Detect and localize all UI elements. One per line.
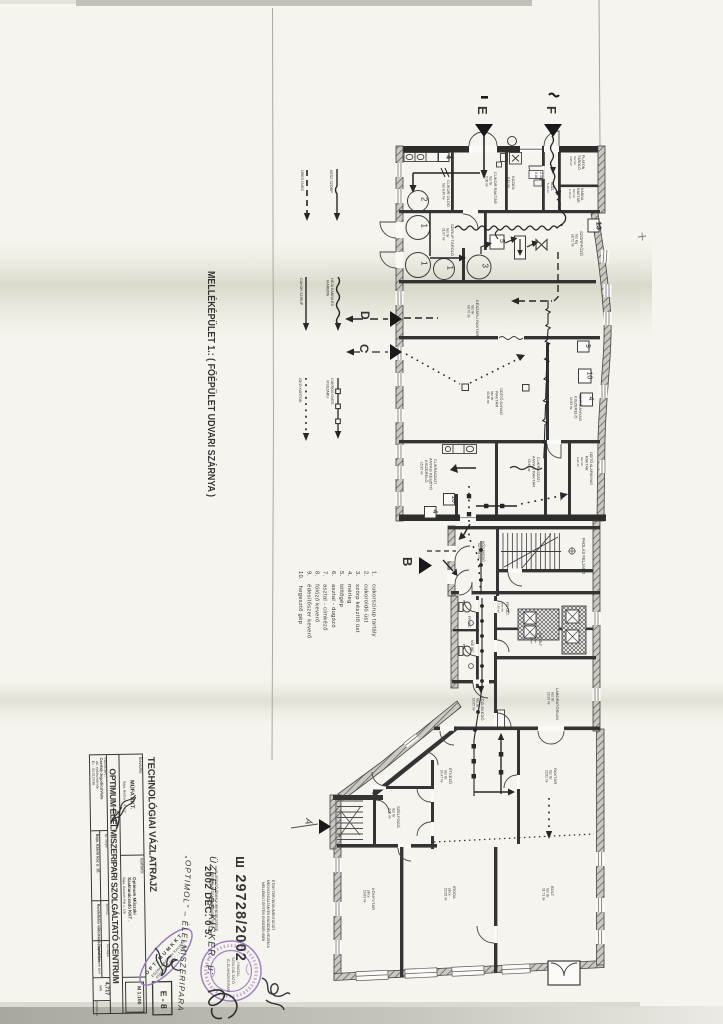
- svg-text:43.36 m²: 43.36 m²: [486, 391, 490, 404]
- svg-text:ISKÓ KARTON: ISKÓ KARTON: [298, 378, 303, 403]
- svg-text:RAKTÁR: RAKTÁR: [585, 456, 589, 471]
- svg-text:E: E: [475, 106, 490, 115]
- svg-text:tervezte:: tervezte:: [138, 757, 143, 774]
- svg-text:KAZÁN: KAZÁN: [511, 176, 516, 189]
- svg-text:10: 10: [586, 372, 593, 380]
- svg-text:SZIRUP TÁROLÓ: SZIRUP TÁROLÓ: [450, 224, 455, 256]
- svg-text:CUKOR OLDÓ: CUKOR OLDÓ: [446, 180, 451, 207]
- svg-text:ÜDÍTŐ ALAPANYAG: ÜDÍTŐ ALAPANYAG: [589, 452, 594, 485]
- svg-text:építész:: építész:: [105, 904, 109, 916]
- svg-text:3.95 m²: 3.95 m²: [569, 156, 573, 166]
- svg-text:1. cukorszirup tartály: 1. cukorszirup tartály: [371, 571, 377, 637]
- svg-text:7.70 m²: 7.70 m²: [530, 634, 534, 644]
- svg-text:KÉSZ SZÖRP: KÉSZ SZÖRP: [329, 170, 334, 193]
- svg-text:NŐI WC: NŐI WC: [470, 640, 475, 653]
- svg-text:ÜZLET és KISKER. μ;: ÜZLET és KISKER. μ;: [205, 856, 218, 976]
- svg-text:KISZERELŐ: KISZERELŐ: [574, 396, 579, 418]
- svg-text:KÉSZÁRU RAKTÁR: KÉSZÁRU RAKTÁR: [475, 300, 480, 336]
- svg-text:9.06 m²: 9.06 m²: [388, 808, 392, 819]
- svg-text:5: 5: [498, 239, 505, 243]
- svg-text:7.20 m²: 7.20 m²: [497, 603, 501, 613]
- svg-text:ép. helye:: ép. helye:: [104, 834, 108, 849]
- svg-text:5. töltőgép: 5. töltőgép: [338, 571, 344, 607]
- svg-text:14.55 m²: 14.55 m²: [472, 698, 476, 711]
- svg-text:FFI WC: FFI WC: [467, 616, 471, 628]
- svg-text:KÖZL.: KÖZL.: [559, 492, 563, 502]
- svg-text:ÉTDH TERVDOKUMENTÁCIÓT: ÉTDH TERVDOKUMENTÁCIÓT: [271, 880, 276, 931]
- svg-text:1: 1: [446, 266, 455, 271]
- svg-text:ANYAG RAKTÁR: ANYAG RAKTÁR: [532, 456, 537, 487]
- svg-text:9.06 m²: 9.06 m²: [485, 176, 489, 187]
- svg-text:1: 1: [420, 261, 429, 266]
- svg-text:ш 29728/2002: ш 29728/2002: [232, 856, 248, 962]
- svg-text:ÉLELMISZERIPARI: ÉLELMISZERIPARI: [226, 959, 231, 992]
- svg-text:KISZERELŐ: KISZERELŐ: [424, 460, 429, 482]
- svg-text:CUKROS ÜVEG: CUKROS ÜVEG: [330, 378, 334, 405]
- svg-text:Baja, Kossuth Pál u. 1/8.: Baja, Kossuth Pál u. 1/8.: [122, 877, 127, 914]
- svg-text:M 1:100: M 1:100: [136, 986, 142, 1005]
- svg-text:2. cukoroldó üst: 2. cukoroldó üst: [362, 571, 368, 623]
- svg-text:Szaktanácsadó KKT .: Szaktanácsadó KKT .: [127, 877, 133, 921]
- svg-text:2002/06.24: 2002/06.24: [95, 1001, 99, 1016]
- svg-text:HIVATAL: HIVATAL: [236, 962, 240, 977]
- svg-text:20.56 m²: 20.56 m²: [444, 888, 448, 901]
- svg-text:10. hegesztő gép: 10. hegesztő gép: [297, 571, 303, 624]
- svg-text:6. asztal - dugózó: 6. asztal - dugózó: [330, 571, 336, 628]
- svg-text:13.48 m²: 13.48 m²: [527, 459, 531, 472]
- svg-text:HÉJA KANNA ÉS: HÉJA KANNA ÉS: [330, 278, 335, 307]
- svg-text:NŐ ÖLT: NŐ ÖLT: [538, 633, 543, 647]
- svg-text:hsz 8.40 m²: hsz 8.40 m²: [442, 183, 446, 200]
- svg-text:SZÉLFOGÓ: SZÉLFOGÓ: [396, 806, 401, 828]
- svg-text:LABORATÓRIUM: LABORATÓRIUM: [555, 688, 560, 720]
- svg-text:É1 - 03-0127/98: É1 - 03-0127/98: [91, 761, 96, 786]
- svg-text:ÜRES ÜVEG: ÜRES ÜVEG: [300, 170, 304, 191]
- svg-text:21.97 m²: 21.97 m²: [442, 228, 446, 241]
- svg-text:Á: Á: [303, 817, 314, 825]
- svg-text:MELLÉKELT ÉPÍTÉSI ENGEDÉLYBEN: MELLÉKELT ÉPÍTÉSI ENGEDÉLYBEN: [261, 882, 266, 942]
- svg-text:8.12 m²: 8.12 m²: [507, 177, 511, 188]
- svg-text:23.62 m²: 23.62 m²: [545, 770, 549, 783]
- svg-text:RAKTÁR: RAKTÁR: [495, 391, 500, 407]
- svg-text:BOLT: BOLT: [550, 886, 555, 897]
- svg-text:15.95 m²: 15.95 m²: [420, 462, 424, 475]
- svg-text:10: 10: [450, 496, 457, 504]
- svg-text:1: 1: [420, 224, 429, 229]
- svg-text:7. asztal - címkéző: 7. asztal - címkéző: [322, 571, 328, 631]
- svg-text:3. szörp készítő üst: 3. szörp készítő üst: [354, 571, 360, 633]
- svg-text:hsz 6.68 m²: hsz 6.68 m²: [477, 543, 481, 559]
- svg-text:F: F: [544, 106, 559, 114]
- svg-text:6.22 m²: 6.22 m²: [576, 457, 580, 467]
- svg-text:0.80: 0.80: [534, 172, 538, 179]
- svg-text:2.10: 2.10: [539, 172, 543, 179]
- svg-text:18.70 m²: 18.70 m²: [467, 305, 471, 318]
- svg-text:19.20 m²: 19.20 m²: [547, 692, 551, 705]
- svg-text:24.47 m²: 24.47 m²: [440, 770, 444, 783]
- svg-text:E - 8: E - 8: [159, 991, 169, 1009]
- svg-text:13: 13: [595, 222, 604, 230]
- svg-text:31.71 m²: 31.71 m²: [542, 888, 546, 901]
- svg-text:IKARBON: IKARBON: [326, 280, 330, 297]
- svg-text:CUKOR SZIRUP: CUKOR SZIRUP: [299, 278, 303, 306]
- svg-text:8. fölöző keverő: 8. fölöző keverő: [314, 571, 320, 622]
- svg-text:FFI ÖLT.: FFI ÖLT.: [505, 602, 509, 616]
- svg-text:IRODA: IRODA: [452, 886, 457, 899]
- svg-text:RAKTÁR: RAKTÁR: [553, 768, 558, 784]
- svg-text:2: 2: [420, 197, 429, 202]
- svg-text:építtető:: építtető:: [140, 858, 145, 874]
- svg-text:B: B: [400, 557, 415, 566]
- svg-text:14.83 m²: 14.83 m²: [569, 397, 573, 410]
- svg-text:CUKOR RAKTÁR: CUKOR RAKTÁR: [493, 172, 498, 204]
- svg-text:MÜFA KKT.: MÜFA KKT.: [128, 780, 135, 810]
- svg-text:SZÖRPFŐZŐ: SZÖRPFŐZŐ: [579, 231, 584, 256]
- svg-text:2.76 m²: 2.76 m²: [568, 189, 572, 199]
- svg-text:Tervfajta:: Tervfajta:: [106, 944, 110, 958]
- svg-text:MEGVIZSGÁLTAM ÉS ENGEDÉLYEZEM: MEGVIZSGÁLTAM ÉS ENGEDÉLYEZEM A: [266, 880, 271, 949]
- svg-text:4. mérleg: 4. mérleg: [346, 571, 352, 604]
- svg-text:KÖZLEKEDŐ: KÖZLEKEDŐ: [480, 696, 485, 720]
- svg-text:TECHNOLÓGIAI VÁZLATRAJZ: TECHNOLÓGIAI VÁZLATRAJZ: [145, 757, 159, 892]
- svg-text:18.72 m²: 18.72 m²: [571, 234, 575, 247]
- svg-text:4: 4: [431, 510, 438, 514]
- svg-text:VISSZÁRU: VISSZÁRU: [326, 380, 330, 398]
- svg-text:19.63 m²: 19.63 m²: [363, 890, 367, 903]
- svg-text:ÉTKEZŐ: ÉTKEZŐ: [448, 768, 453, 784]
- svg-text:Baja, Kálvin köz u. 15.: Baja, Kálvin köz u. 15.: [95, 834, 100, 874]
- svg-text:4: 4: [445, 155, 452, 159]
- svg-text:Engedélyezési terv: Engedélyezési terv: [97, 944, 101, 975]
- svg-text:MELLÉKÉPÜLET 1.: ( FŐÉPÜLET UD: MELLÉKÉPÜLET 1.: ( FŐÉPÜLET UDVARI SZÁRN…: [205, 271, 218, 497]
- svg-text:3: 3: [481, 264, 490, 269]
- svg-text:PADLÁS FELJÁRÓ: PADLÁS FELJÁRÓ: [581, 538, 586, 575]
- svg-text:4: 4: [587, 397, 594, 401]
- svg-text:KÖNYVTÁR: KÖNYVTÁR: [371, 888, 376, 910]
- svg-text:4,717: 4,717: [103, 982, 109, 996]
- svg-text:9. édesítőszer keverő: 9. édesítőszer keverő: [305, 571, 311, 638]
- svg-text:9: 9: [584, 344, 591, 348]
- svg-text:5.10 m²: 5.10 m²: [546, 183, 550, 193]
- svg-text:m/fé: m/fé: [99, 985, 103, 992]
